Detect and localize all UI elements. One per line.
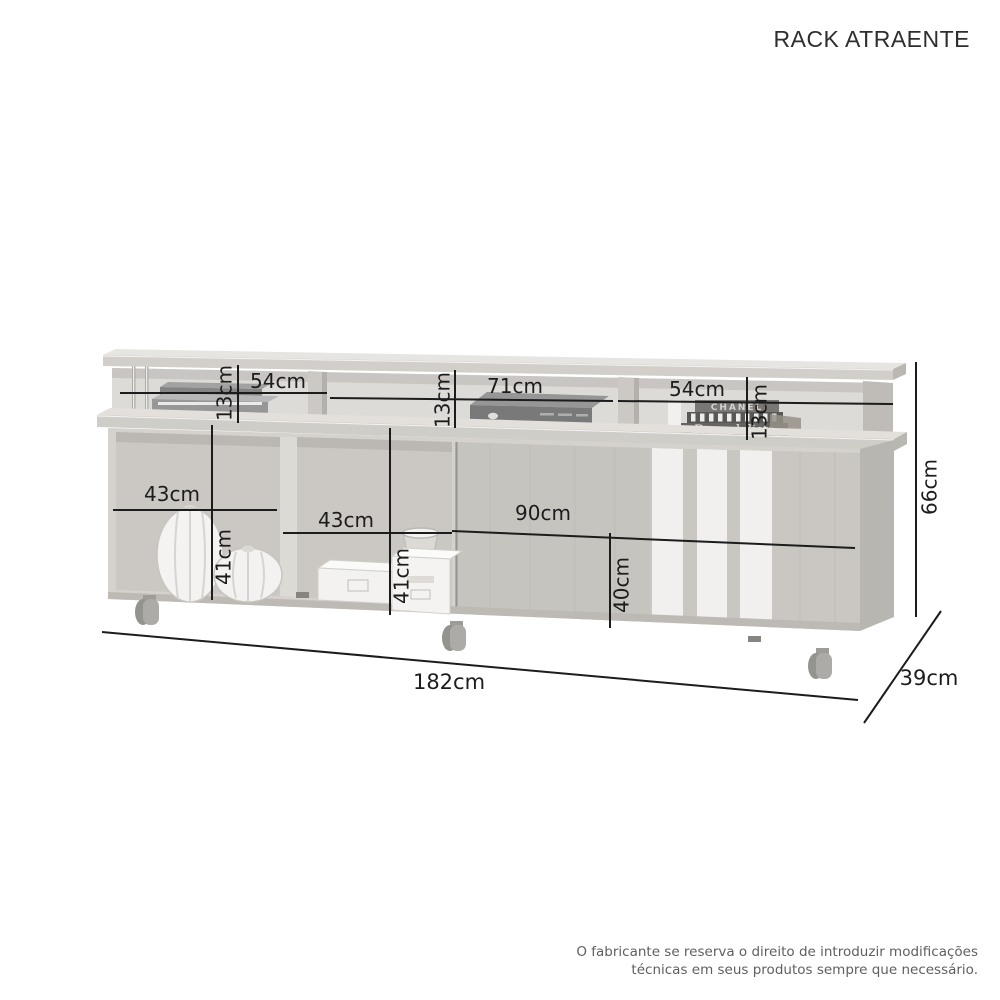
door-striped: [650, 448, 860, 630]
manufacturer-disclaimer: O fabricante se reserva o direito de int…: [576, 944, 978, 980]
caster-center: [442, 621, 466, 651]
foot-small-left: [296, 592, 309, 598]
dim-label-niche-center-width: 43cm: [318, 508, 374, 532]
dim-label-door-height: 40cm: [610, 557, 634, 613]
dim-label-niche-left-width: 43cm: [144, 482, 200, 506]
furniture-dimension-diagram: CHANEL Remodelista: [0, 0, 1000, 1000]
dim-label-top-left-width: 54cm: [250, 369, 306, 393]
caster-right: [808, 648, 832, 679]
dim-label-niche-center-height: 41cm: [390, 548, 414, 604]
cabinet-right-side: [860, 440, 894, 631]
dim-label-total-height: 66cm: [918, 459, 942, 515]
dim-label-total-width: 182cm: [413, 670, 485, 694]
foot-small-right: [748, 636, 761, 642]
disclaimer-line-1: O fabricante se reserva o direito de int…: [576, 944, 978, 962]
dim-label-door-width: 90cm: [515, 501, 571, 525]
back-accent-stripe: [668, 400, 681, 426]
disclaimer-line-2: técnicas em seus produtos sempre que nec…: [576, 962, 978, 980]
dim-label-niche-left-height: 41cm: [212, 529, 236, 585]
product-spec-sheet: RACK ATRAENTE: [0, 0, 1000, 1000]
dim-label-top-center-width: 71cm: [487, 374, 543, 398]
dim-label-top-center-height: 13cm: [431, 372, 455, 428]
dim-label-top-right-width: 54cm: [669, 377, 725, 401]
dim-label-top-right-height: 13cm: [748, 384, 772, 440]
dim-label-top-left-height: 13cm: [213, 365, 237, 421]
dim-label-total-depth: 39cm: [900, 666, 959, 690]
